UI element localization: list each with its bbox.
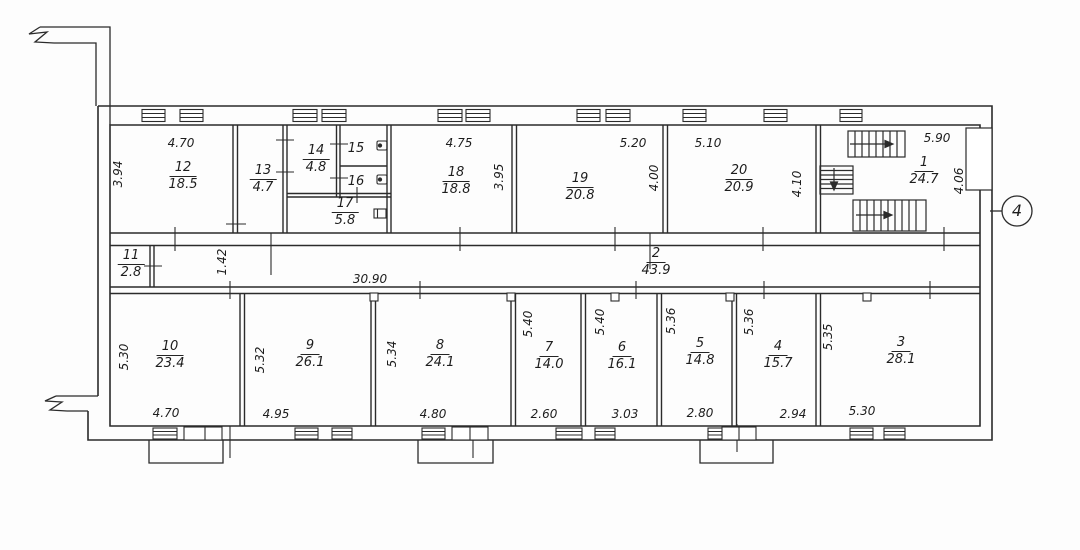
room-number: 17 [332,197,359,213]
room-label-12: 1218.5 [169,161,198,192]
room-label-9: 926.1 [296,339,325,370]
dim-room12-depth: 3.94 [111,161,125,188]
room-area: 4.8 [306,160,327,175]
room-number: 12 [170,161,197,177]
room-number: 6 [613,341,631,357]
room-label-20: 2020.9 [725,164,754,195]
room-area: 24.1 [426,355,455,370]
top-windows [142,110,862,122]
room-label-18: 1818.8 [442,166,471,197]
room-area: 14.8 [686,353,715,368]
dim-room18-depth: 3.95 [492,164,506,191]
room-number: 10 [157,340,184,356]
dim-corridor-length: 30.90 [353,272,387,286]
porches [149,427,773,463]
room-area: 23.4 [156,356,185,371]
dim-room7-depth: 5.40 [521,311,535,338]
dim-room6-width: 3.03 [612,407,639,421]
room-label-3: 328.1 [887,336,916,367]
dim-room8-width: 4.80 [420,407,447,421]
dim-room12-width: 4.70 [168,136,195,150]
room-number: 3 [892,336,910,352]
dim-room9-depth: 5.32 [253,347,267,374]
room-area: 43.9 [642,263,671,278]
dim-room20-width: 5.10 [695,136,722,150]
room-area: 26.1 [296,355,325,370]
dim-room19-width: 5.20 [620,136,647,150]
room-number: 7 [540,341,558,357]
dim-room8-depth: 5.34 [385,341,399,368]
room-area: 15.7 [764,356,793,371]
fixtures [374,141,387,218]
room-number: 19 [567,172,594,188]
room-label-15: 15 [348,141,365,156]
room-number: 14 [303,144,330,160]
dim-room7-width: 2.60 [531,407,558,421]
room-area: 20.9 [725,180,754,195]
room-number: 8 [431,339,449,355]
toilet-icon [377,175,387,184]
break-wall-bottom-left [45,396,98,411]
room-label-10: 1023.4 [156,340,185,371]
room-area: 28.1 [887,352,916,367]
room-label-13: 134.7 [250,164,277,195]
room-number: 5 [691,337,709,353]
room-number: 1 [915,156,933,172]
dim-room5-depth: 5.36 [664,308,678,335]
room-area: 18.8 [442,182,471,197]
dim-room18-width: 4.75 [446,136,473,150]
dim-room1-width: 5.90 [924,131,951,145]
room-label-6: 616.1 [608,341,637,372]
room-label-17: 175.8 [332,197,359,228]
room-label-16: 16 [348,174,365,189]
stairs [820,128,992,231]
dim-room10-width: 4.70 [153,406,180,420]
dim-room9-width: 4.95 [263,407,290,421]
room-label-7: 714.0 [535,341,564,372]
sink-icon [374,209,386,218]
room-area: 5.8 [335,213,356,228]
dim-room19-depth: 4.00 [647,165,661,192]
dim-room20-depth: 4.10 [790,171,804,198]
room-label-1: 124.7 [910,156,939,187]
room-label-14: 144.8 [303,144,330,175]
room-number: 9 [301,339,319,355]
dim-room10-depth: 5.30 [117,344,131,371]
room-number: 18 [443,166,470,182]
floorplan-page: 1218.5 134.7 144.8 15 16 175.8 1818.8 19… [0,0,1080,550]
dim-room6-depth: 5.40 [593,309,607,336]
axis-marker-label: 4 [1012,201,1022,220]
room-area: 2.8 [121,265,142,280]
plan-linework [0,0,1080,550]
room-label-2: 243.9 [642,247,671,278]
room-label-8: 824.1 [426,339,455,370]
dim-room5-width: 2.80 [687,406,714,420]
room-label-11: 112.8 [118,249,145,280]
room-area: 24.7 [910,172,939,187]
room-number: 4 [769,340,787,356]
dim-room3-depth: 5.35 [821,324,835,351]
room-area: 20.8 [566,188,595,203]
room-area: 16.1 [608,357,637,372]
room-number: 2 [647,247,665,263]
toilet-icon [377,141,387,150]
dim-room4-depth: 5.36 [742,309,756,336]
room-number: 13 [250,164,277,180]
bottom-windows [153,428,905,439]
dim-room3-width: 5.30 [849,404,876,418]
room-label-19: 1920.8 [566,172,595,203]
room-number: 11 [118,249,145,265]
dim-room1-depth: 4.06 [952,168,966,195]
room-area: 18.5 [169,177,198,192]
dim-room4-width: 2.94 [780,407,807,421]
room-area: 14.0 [535,357,564,372]
dim-corridor-width: 1.42 [215,249,229,276]
room-area: 4.7 [253,180,274,195]
room-number: 20 [726,164,753,180]
room-label-5: 514.8 [686,337,715,368]
room-label-4: 415.7 [764,340,793,371]
